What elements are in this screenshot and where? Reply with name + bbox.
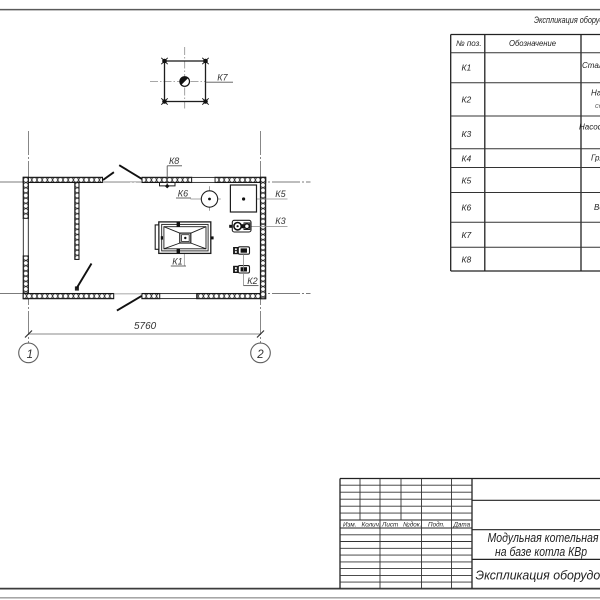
svg-text:Насос сетевой: Насос сетевой xyxy=(591,89,600,98)
svg-text:2: 2 xyxy=(256,349,264,361)
svg-text:К5: К5 xyxy=(275,189,286,199)
svg-text:К1: К1 xyxy=(462,63,472,73)
svg-text:К7: К7 xyxy=(462,230,472,240)
svg-text:5760: 5760 xyxy=(134,321,157,332)
svg-text:на базе котла КВр: на базе котла КВр xyxy=(495,545,587,559)
svg-text:№ поз.: № поз. xyxy=(456,39,482,48)
svg-text:Вентилятор: Вентилятор xyxy=(594,203,600,212)
svg-text:Подп.: Подп. xyxy=(428,520,445,528)
svg-text:Насос подпиточный: Насос подпиточный xyxy=(579,123,600,132)
svg-text:К5: К5 xyxy=(462,175,472,185)
svg-text:Экспликация оборудования: Экспликация оборудования xyxy=(534,15,600,26)
svg-text:Грязевик: Грязевик xyxy=(591,154,600,163)
svg-text:К6: К6 xyxy=(178,188,188,198)
svg-text:№док.: №док. xyxy=(403,520,422,528)
svg-text:Стальной котел: Стальной котел xyxy=(582,61,600,70)
svg-text:Колич.: Колич. xyxy=(362,521,381,528)
svg-text:К2: К2 xyxy=(462,95,472,105)
svg-text:К1: К1 xyxy=(172,256,182,266)
svg-text:К4: К4 xyxy=(462,153,472,163)
svg-text:Модульная котельная: Модульная котельная xyxy=(488,531,599,545)
svg-text:Лист: Лист xyxy=(381,521,398,528)
svg-text:К6: К6 xyxy=(462,203,472,213)
svg-text:Дата: Дата xyxy=(453,521,471,528)
svg-text:К7: К7 xyxy=(217,72,228,82)
svg-text:сетевой: сетевой xyxy=(595,101,600,110)
svg-text:Обозначение: Обозначение xyxy=(509,39,557,48)
svg-text:К3: К3 xyxy=(462,129,472,139)
svg-text:К8: К8 xyxy=(462,255,472,265)
svg-text:К8: К8 xyxy=(169,156,179,166)
svg-text:К3: К3 xyxy=(275,216,285,226)
svg-text:1: 1 xyxy=(27,349,33,361)
svg-text:Экспликация оборудования: Экспликация оборудования xyxy=(476,568,600,583)
svg-text:Изм.: Изм. xyxy=(343,521,356,528)
svg-text:К2: К2 xyxy=(247,276,257,286)
